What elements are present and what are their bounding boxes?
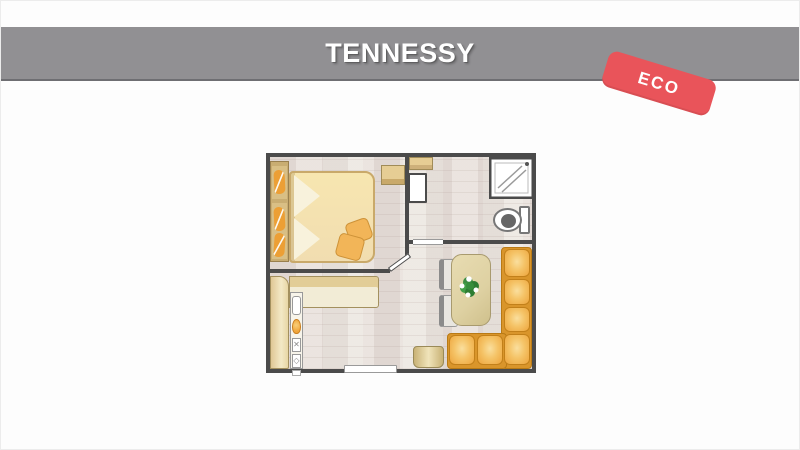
wardrobe-shelf (272, 203, 287, 259)
pillow-icon (294, 175, 320, 217)
sofa-cushion (504, 249, 530, 277)
wall-bedroom-bottom (270, 269, 390, 273)
sofa-cushion (477, 335, 503, 365)
brochure-page: TENNESSY ECO (0, 0, 800, 450)
bed-cushion (334, 232, 365, 262)
sofa-cushion (504, 334, 530, 365)
eco-badge-label: ECO (636, 68, 683, 100)
pillow-icon (294, 218, 320, 260)
double-bed (289, 171, 375, 263)
burner-glyph: ✕ (293, 341, 300, 349)
wardrobe-shelf (272, 166, 287, 199)
stool (413, 346, 444, 368)
bedroom-door (388, 253, 411, 272)
kitchen-counter-left (270, 276, 289, 369)
clothes-icon (273, 207, 285, 232)
bathroom-door (408, 173, 427, 203)
overhead-cabinet (409, 157, 433, 170)
overhead-cabinet (381, 165, 405, 185)
plant-centerpiece-icon (455, 273, 483, 301)
toilet (493, 208, 522, 232)
kitchen-appliance-strip: ✕ ◇ (290, 292, 303, 369)
bathroom-doorway (413, 239, 443, 245)
kitchen-sink (292, 296, 301, 315)
kitchen-drawer (292, 370, 301, 376)
fruit-basket-icon (292, 319, 301, 334)
stove-burner-icon: ◇ (292, 354, 301, 368)
clothes-icon (273, 233, 286, 258)
floor-plan: ✕ ◇ (266, 153, 536, 373)
sofa-cushion (449, 335, 475, 365)
sofa-cushion (504, 307, 530, 332)
sofa-cushion (504, 279, 530, 305)
stove-burner-icon: ✕ (292, 338, 301, 352)
burner-glyph: ◇ (293, 357, 299, 365)
toilet-seat-icon (501, 214, 516, 228)
entrance-door (344, 365, 397, 373)
shower-icon (489, 157, 534, 199)
clothes-icon (273, 170, 285, 195)
wardrobe (270, 161, 289, 262)
page-title: TENNESSY (325, 38, 475, 69)
